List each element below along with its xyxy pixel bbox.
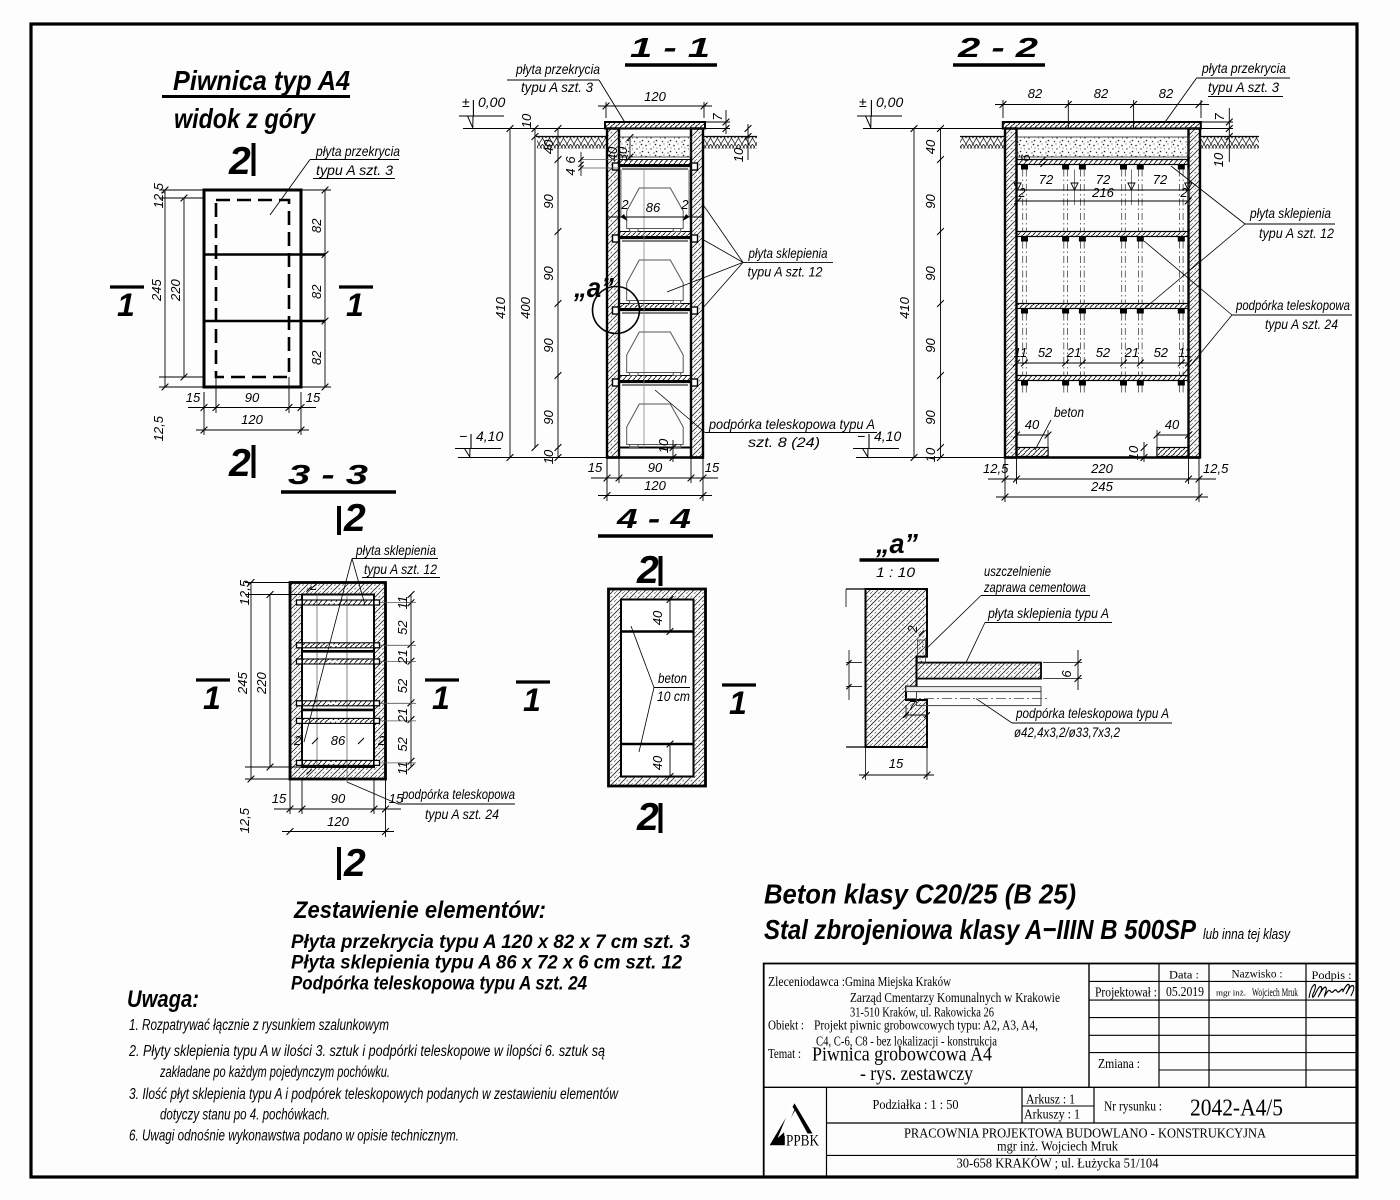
svg-text:2: 2 [905, 625, 920, 634]
svg-text:lub inna tej klasy: lub inna tej klasy [1203, 926, 1291, 943]
svg-text:Wojciech Mruk: Wojciech Mruk [1252, 987, 1298, 999]
svg-text:płyta sklepienia typu A: płyta sklepienia typu A [987, 605, 1109, 621]
svg-text:2: 2 [620, 197, 629, 212]
svg-text:Zleceniodawca :: Zleceniodawca : [768, 974, 845, 989]
svg-text:Piwnica typ A4: Piwnica typ A4 [173, 65, 350, 96]
svg-text:Temat :: Temat : [768, 1046, 801, 1061]
svg-text:30-658 KRAKÓW ; ul. Łużycka 51: 30-658 KRAKÓW ; ul. Łużycka 51/104 [957, 1156, 1159, 1171]
svg-text:6: 6 [1059, 670, 1074, 678]
svg-text:21: 21 [395, 650, 410, 665]
svg-text:2: 2 [377, 733, 386, 748]
svg-text:52: 52 [395, 736, 410, 751]
svg-text:10: 10 [1126, 445, 1141, 460]
svg-text:90: 90 [923, 266, 938, 281]
svg-text:zakładane po każdym pojedynczy: zakładane po każdym pojedynczym pochówku… [159, 1064, 390, 1081]
svg-text:widok z góry: widok z góry [174, 103, 316, 134]
svg-text:15: 15 [889, 756, 904, 771]
svg-text:Projekt piwnic grobowcowych ty: Projekt piwnic grobowcowych typu: A2, A3… [814, 1018, 1038, 1033]
svg-text:3. Ilość płyt sklepienia typu: 3. Ilość płyt sklepienia typu A i podpór… [129, 1086, 619, 1103]
svg-text:ø42,4x3,2/ø33,7x3,2: ø42,4x3,2/ø33,7x3,2 [1014, 724, 1120, 740]
svg-text:2: 2 [636, 549, 659, 592]
svg-text:Arkusz : 1: Arkusz : 1 [1026, 1092, 1075, 1107]
svg-text:82: 82 [1028, 86, 1043, 101]
svg-text:Zarząd Cmentarzy Komunalnych w: Zarząd Cmentarzy Komunalnych w Krakowie [850, 990, 1060, 1005]
svg-text:120: 120 [644, 478, 666, 493]
svg-text:płyta sklepienia: płyta sklepienia [748, 245, 828, 261]
svg-text:0,00: 0,00 [876, 94, 903, 110]
svg-text:10: 10 [923, 447, 938, 462]
svg-text:płyta sklepienia: płyta sklepienia [1249, 205, 1331, 221]
svg-text:Projektował :: Projektował : [1095, 985, 1157, 1000]
svg-text:90: 90 [245, 390, 260, 405]
svg-text:płyta przekrycia: płyta przekrycia [315, 143, 400, 159]
svg-text:szt. 8 (24): szt. 8 (24) [748, 434, 820, 450]
svg-text:„a”: „a” [875, 528, 918, 559]
svg-text:±: ± [859, 94, 867, 110]
svg-text:40: 40 [541, 139, 556, 154]
svg-text:2: 2 [1179, 185, 1188, 200]
svg-text:21: 21 [1066, 345, 1081, 360]
svg-text:10: 10 [519, 113, 534, 128]
svg-text:Zmiana :: Zmiana : [1098, 1056, 1140, 1071]
svg-text:1: 1 [729, 685, 747, 721]
svg-text:1: 1 [432, 680, 450, 716]
svg-text:12,5: 12,5 [237, 579, 252, 605]
svg-text:1 - 1: 1 - 1 [630, 32, 710, 63]
svg-text:„a”: „a” [573, 272, 614, 303]
svg-text:podpórka teleskopowa typu A: podpórka teleskopowa typu A [1015, 705, 1169, 721]
svg-text:10: 10 [656, 438, 671, 453]
svg-text:86: 86 [331, 733, 346, 748]
svg-text:52: 52 [1038, 345, 1053, 360]
svg-text:10: 10 [541, 449, 556, 464]
svg-text:Data :: Data : [1169, 968, 1199, 982]
svg-text:- rys. zestawczy: - rys. zestawczy [860, 1063, 973, 1085]
svg-text:Płyta sklepienia typu A 86 x 7: Płyta sklepienia typu A 86 x 72 x 6 cm s… [291, 953, 682, 974]
svg-text:beton: beton [1054, 404, 1084, 420]
svg-text:40: 40 [650, 610, 665, 625]
svg-text:Nazwisko :: Nazwisko : [1232, 967, 1283, 981]
svg-text:typu A szt. 24: typu A szt. 24 [425, 806, 499, 822]
svg-text:82: 82 [1159, 86, 1174, 101]
svg-text:12,5: 12,5 [1203, 461, 1229, 476]
svg-text:1 : 10: 1 : 10 [876, 564, 915, 580]
svg-text:2042-A4/5: 2042-A4/5 [1190, 1096, 1283, 1122]
svg-text:410: 410 [493, 296, 508, 318]
svg-text:40: 40 [923, 139, 938, 154]
svg-text:Nr rysunku :: Nr rysunku : [1104, 1099, 1162, 1114]
svg-text:płyta przekrycia: płyta przekrycia [515, 61, 600, 77]
svg-text:11: 11 [1014, 345, 1028, 360]
svg-text:typu A szt. 24: typu A szt. 24 [1265, 316, 1338, 332]
svg-text:płyta przekrycia: płyta przekrycia [1201, 60, 1286, 76]
svg-text:2: 2 [343, 497, 366, 540]
svg-text:1: 1 [117, 287, 135, 323]
svg-text:typu A szt. 12: typu A szt. 12 [1259, 225, 1334, 241]
svg-text:245: 245 [149, 279, 164, 302]
svg-text:12,5: 12,5 [237, 807, 252, 833]
svg-text:245: 245 [235, 672, 250, 695]
svg-text:Podziałka : 1 : 50: Podziałka : 1 : 50 [873, 1097, 959, 1112]
svg-text:40: 40 [650, 755, 665, 770]
svg-text:typu A szt. 12: typu A szt. 12 [748, 264, 823, 280]
svg-text:1: 1 [346, 287, 364, 323]
svg-text:4: 4 [563, 168, 578, 175]
svg-text:dotyczy stanu po 4. pochówkach: dotyczy stanu po 4. pochówkach. [160, 1107, 330, 1124]
svg-text:90: 90 [923, 194, 938, 209]
svg-text:2: 2 [343, 842, 366, 885]
svg-text:PPBK: PPBK [786, 1133, 819, 1150]
svg-text:2. Płyty sklepienia typu A w: 2. Płyty sklepienia typu A w ilości 3. s… [128, 1043, 605, 1060]
svg-text:Podpis :: Podpis : [1312, 968, 1352, 982]
svg-text:7: 7 [710, 113, 725, 121]
svg-text:2: 2 [228, 442, 251, 485]
svg-text:12,5: 12,5 [151, 182, 166, 208]
svg-text:podpórka teleskopowa: podpórka teleskopowa [401, 786, 515, 802]
svg-text:11: 11 [1178, 345, 1192, 360]
svg-text:2: 2 [309, 578, 318, 593]
svg-text:podpórka teleskopowa typu A: podpórka teleskopowa typu A [708, 416, 875, 432]
svg-text:Podpórka teleskopowa typu A sz: Podpórka teleskopowa typu A szt. 24 [291, 974, 587, 995]
svg-text:2: 2 [636, 796, 659, 839]
svg-text:Arkuszy : 1: Arkuszy : 1 [1024, 1107, 1080, 1122]
svg-text:4,10: 4,10 [874, 428, 901, 444]
svg-text:Obiekt :: Obiekt : [768, 1018, 804, 1033]
svg-text:72: 72 [1039, 172, 1054, 187]
svg-text:Płyta przekrycia typu A 120 x: Płyta przekrycia typu A 120 x 82 x 7 cm … [291, 932, 690, 953]
svg-text:82: 82 [309, 284, 324, 299]
svg-text:Zestawienie elementów:: Zestawienie elementów: [293, 897, 546, 924]
svg-text:90: 90 [541, 338, 556, 353]
svg-text:typu A szt. 3: typu A szt. 3 [1208, 79, 1279, 95]
svg-text:15: 15 [186, 390, 201, 405]
svg-text:52: 52 [395, 620, 410, 635]
svg-text:410: 410 [897, 296, 912, 318]
svg-text:7: 7 [908, 698, 916, 713]
svg-text:4,10: 4,10 [476, 428, 503, 444]
svg-text:90: 90 [541, 266, 556, 281]
svg-text:21: 21 [1124, 345, 1139, 360]
svg-text:05.2019: 05.2019 [1166, 984, 1204, 999]
svg-text:120: 120 [241, 412, 263, 427]
svg-text:90: 90 [541, 410, 556, 425]
svg-text:82: 82 [1094, 86, 1109, 101]
svg-text:typu A szt. 3: typu A szt. 3 [316, 162, 393, 178]
svg-text:216: 216 [1091, 185, 1114, 200]
svg-text:4 - 4: 4 - 4 [616, 503, 692, 534]
svg-text:2: 2 [293, 733, 302, 748]
svg-text:90: 90 [923, 338, 938, 353]
svg-text:72: 72 [1153, 172, 1168, 187]
svg-text:6: 6 [1018, 154, 1033, 162]
svg-text:mgr inż.: mgr inż. [1216, 989, 1246, 998]
svg-text:82: 82 [309, 218, 324, 233]
svg-text:1. Rozpatrywać łącznie z rysu: 1. Rozpatrywać łącznie z rysunkiem szalu… [129, 1017, 389, 1034]
svg-text:3 - 3: 3 - 3 [288, 459, 369, 490]
svg-text:−: − [857, 428, 865, 444]
svg-text:11: 11 [395, 596, 410, 610]
svg-text:10: 10 [1211, 152, 1226, 167]
svg-text:90: 90 [331, 791, 346, 806]
svg-text:220: 220 [254, 672, 269, 695]
svg-text:90: 90 [541, 194, 556, 209]
svg-text:400: 400 [518, 296, 533, 318]
svg-text:12,5: 12,5 [151, 415, 166, 441]
svg-text:86: 86 [646, 200, 661, 215]
svg-text:1: 1 [523, 682, 541, 718]
svg-text:90: 90 [923, 410, 938, 425]
svg-text:15: 15 [272, 791, 287, 806]
svg-text:beton: beton [658, 670, 687, 686]
svg-text:2: 2 [680, 197, 689, 212]
svg-text:typu A szt. 3: typu A szt. 3 [521, 79, 593, 95]
svg-text:zaprawa cementowa: zaprawa cementowa [983, 579, 1086, 595]
svg-text:−: − [459, 428, 467, 444]
svg-text:30: 30 [615, 146, 630, 161]
svg-text:120: 120 [327, 814, 349, 829]
svg-text:typu A szt. 12: typu A szt. 12 [364, 561, 437, 577]
svg-text:21: 21 [395, 708, 410, 723]
svg-text:1: 1 [203, 680, 221, 716]
svg-text:15: 15 [705, 460, 720, 475]
svg-text:mgr inż. Wojciech Mruk: mgr inż. Wojciech Mruk [997, 1139, 1118, 1154]
svg-text:±: ± [462, 94, 470, 110]
svg-text:0,00: 0,00 [478, 94, 505, 110]
svg-text:52: 52 [395, 678, 410, 693]
svg-text:6: 6 [563, 156, 578, 164]
svg-text:52: 52 [1154, 345, 1169, 360]
svg-text:245: 245 [1090, 479, 1113, 494]
svg-text:Gmina Miejska Kraków: Gmina Miejska Kraków [845, 974, 951, 989]
svg-text:90: 90 [648, 460, 663, 475]
svg-text:7: 7 [1212, 113, 1227, 121]
svg-text:6. Uwagi odnośnie wykonawstwa: 6. Uwagi odnośnie wykonawstwa podano w o… [129, 1128, 459, 1145]
svg-text:Beton klasy C20/25 (B 25): Beton klasy C20/25 (B 25) [764, 879, 1076, 910]
svg-text:15: 15 [306, 390, 321, 405]
svg-text:2: 2 [1017, 185, 1026, 200]
svg-text:10 cm: 10 cm [657, 688, 690, 704]
svg-text:220: 220 [168, 279, 183, 302]
svg-text:10: 10 [731, 147, 746, 162]
svg-text:2: 2 [228, 140, 251, 183]
svg-text:52: 52 [1096, 345, 1111, 360]
svg-text:Stal zbrojeniowa klasy A−IIIN: Stal zbrojeniowa klasy A−IIIN B 500SP [764, 914, 1196, 945]
svg-text:uszczelnienie: uszczelnienie [984, 563, 1051, 579]
svg-text:11: 11 [395, 761, 410, 775]
svg-text:Uwaga:: Uwaga: [127, 986, 199, 1013]
svg-text:40: 40 [1025, 417, 1040, 432]
svg-text:82: 82 [309, 350, 324, 365]
svg-text:220: 220 [1090, 461, 1113, 476]
svg-text:120: 120 [644, 89, 666, 104]
svg-text:podpórka teleskopowa: podpórka teleskopowa [1235, 297, 1350, 313]
svg-text:40: 40 [1165, 417, 1180, 432]
svg-text:2 - 2: 2 - 2 [957, 32, 1039, 63]
svg-text:15: 15 [588, 460, 603, 475]
svg-text:płyta sklepienia: płyta sklepienia [355, 542, 436, 558]
